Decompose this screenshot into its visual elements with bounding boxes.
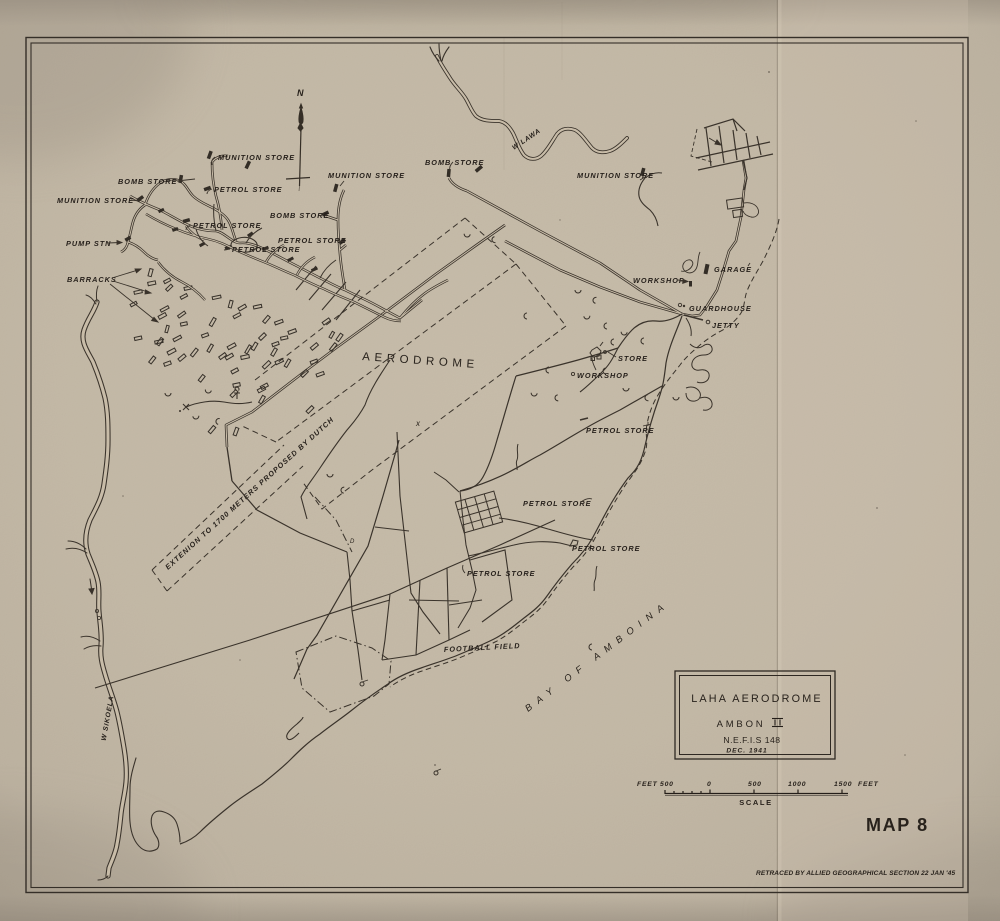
svg-text:BARRACKS: BARRACKS — [67, 275, 117, 284]
svg-text:BOMB STORE: BOMB STORE — [118, 177, 177, 186]
svg-text:500: 500 — [748, 781, 762, 788]
svg-text:N: N — [297, 88, 304, 98]
svg-text:MUNITION STORE: MUNITION STORE — [57, 196, 134, 205]
svg-text:BOMB STORE: BOMB STORE — [425, 158, 484, 167]
svg-text:PUMP STN: PUMP STN — [66, 239, 111, 248]
svg-text:N.E.F.I.S 148: N.E.F.I.S 148 — [723, 735, 780, 745]
svg-text:1000: 1000 — [788, 781, 806, 788]
svg-text:LAHA AERODROME: LAHA AERODROME — [691, 693, 823, 705]
svg-text:MAP 8: MAP 8 — [866, 815, 929, 835]
svg-text:0: 0 — [707, 781, 712, 788]
svg-text:WORKSHOP: WORKSHOP — [577, 371, 629, 380]
svg-text:FEET: FEET — [858, 781, 879, 788]
svg-text:PETROL STORE: PETROL STORE — [467, 569, 536, 578]
svg-text:GUARDHOUSE: GUARDHOUSE — [689, 304, 752, 313]
svg-text:500: 500 — [660, 781, 674, 788]
svg-text:RETRACED BY ALLIED GEOGRAPH: RETRACED BY ALLIED GEOGRAPHICAL SECTION … — [756, 870, 955, 877]
svg-text:FEET: FEET — [637, 781, 658, 788]
svg-text:STORE: STORE — [618, 354, 648, 363]
svg-text:WORKSHOP: WORKSHOP — [633, 276, 685, 285]
svg-text:MUNITION STORE: MUNITION STORE — [218, 153, 295, 162]
svg-text:PETROL STORE: PETROL STORE — [232, 245, 301, 254]
svg-text:SCALE: SCALE — [739, 798, 772, 807]
svg-text:JETTY: JETTY — [712, 321, 740, 330]
svg-text:PETROL STORE: PETROL STORE — [523, 499, 592, 508]
svg-text:1500: 1500 — [834, 781, 852, 788]
svg-text:PETROL STORE: PETROL STORE — [214, 185, 283, 194]
svg-text:D: D — [350, 539, 355, 545]
svg-text:BOMB STORE: BOMB STORE — [270, 211, 329, 220]
svg-text:PETROL STORE: PETROL STORE — [193, 221, 262, 230]
svg-text:AMBON: AMBON — [717, 719, 766, 730]
svg-text:GARAGE: GARAGE — [714, 265, 752, 274]
svg-text:PETROL STORE: PETROL STORE — [572, 544, 641, 553]
svg-text:MUNITION STORE: MUNITION STORE — [328, 171, 405, 180]
svg-text:PETROL STORE: PETROL STORE — [586, 426, 655, 435]
svg-text:DEC. 1941: DEC. 1941 — [726, 748, 767, 755]
